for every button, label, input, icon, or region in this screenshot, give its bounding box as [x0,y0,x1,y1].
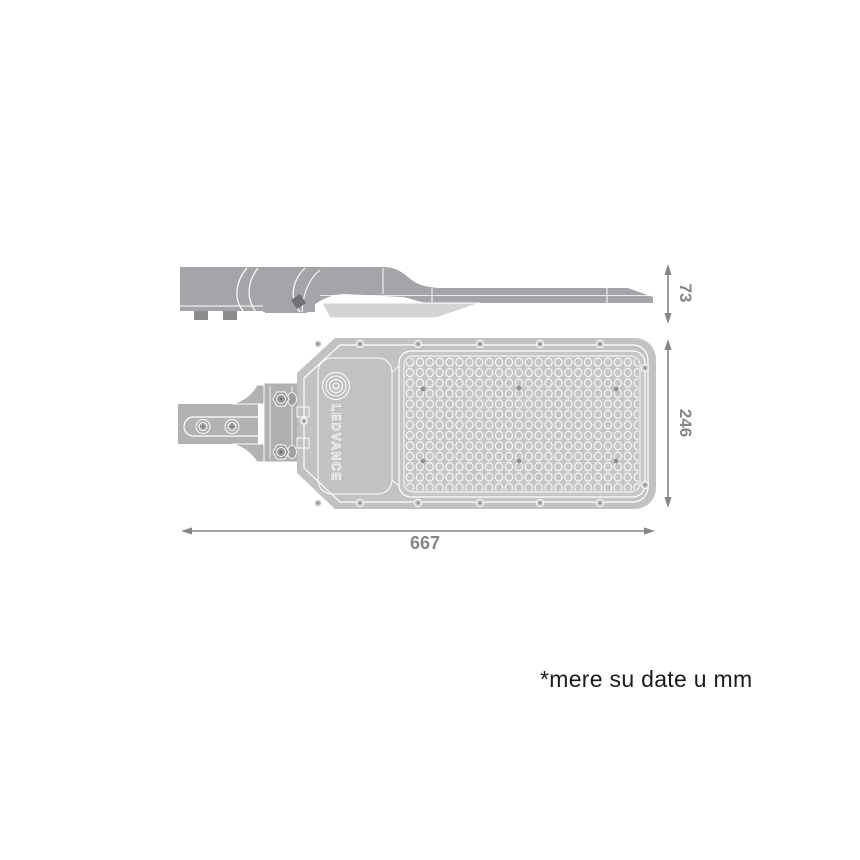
street-light-dimension-diagram: LEDVANCE [0,0,860,860]
units-note: *mere su date u mm [540,666,752,693]
top-view-drawing: LEDVANCE [178,338,656,509]
dimension-width: 246 [664,339,695,508]
led-lens-grid [406,358,639,491]
top-view-arm-flare [233,444,266,462]
arrow-up-icon [664,264,671,275]
side-view-visor [322,303,480,318]
arrow-left-icon [181,527,192,534]
side-view-drawing [180,267,653,320]
side-view-bottom-tab [194,311,208,320]
clamp-hex-bolt [273,392,297,406]
arm-slot-screw [225,420,239,434]
dimension-height-value: 73 [676,284,695,303]
top-view-arm [178,404,258,444]
brand-logo-text: LEDVANCE [329,404,343,482]
arrow-right-icon [644,527,655,534]
dimension-height: 73 [664,264,695,324]
dimension-length-value: 667 [410,533,440,553]
dimension-width-value: 246 [676,409,695,437]
technical-drawing-canvas: LEDVANCE [0,0,860,860]
dimension-length: 667 [181,527,655,553]
arm-slot-screw [196,420,210,434]
top-view-arm-flare [233,385,266,404]
arrow-down-icon [664,497,671,508]
arrow-up-icon [664,339,671,350]
side-view-arm-block [180,267,265,311]
side-view-bottom-tab [223,311,237,320]
arrow-down-icon [664,313,671,324]
clamp-hex-bolt [273,445,297,459]
